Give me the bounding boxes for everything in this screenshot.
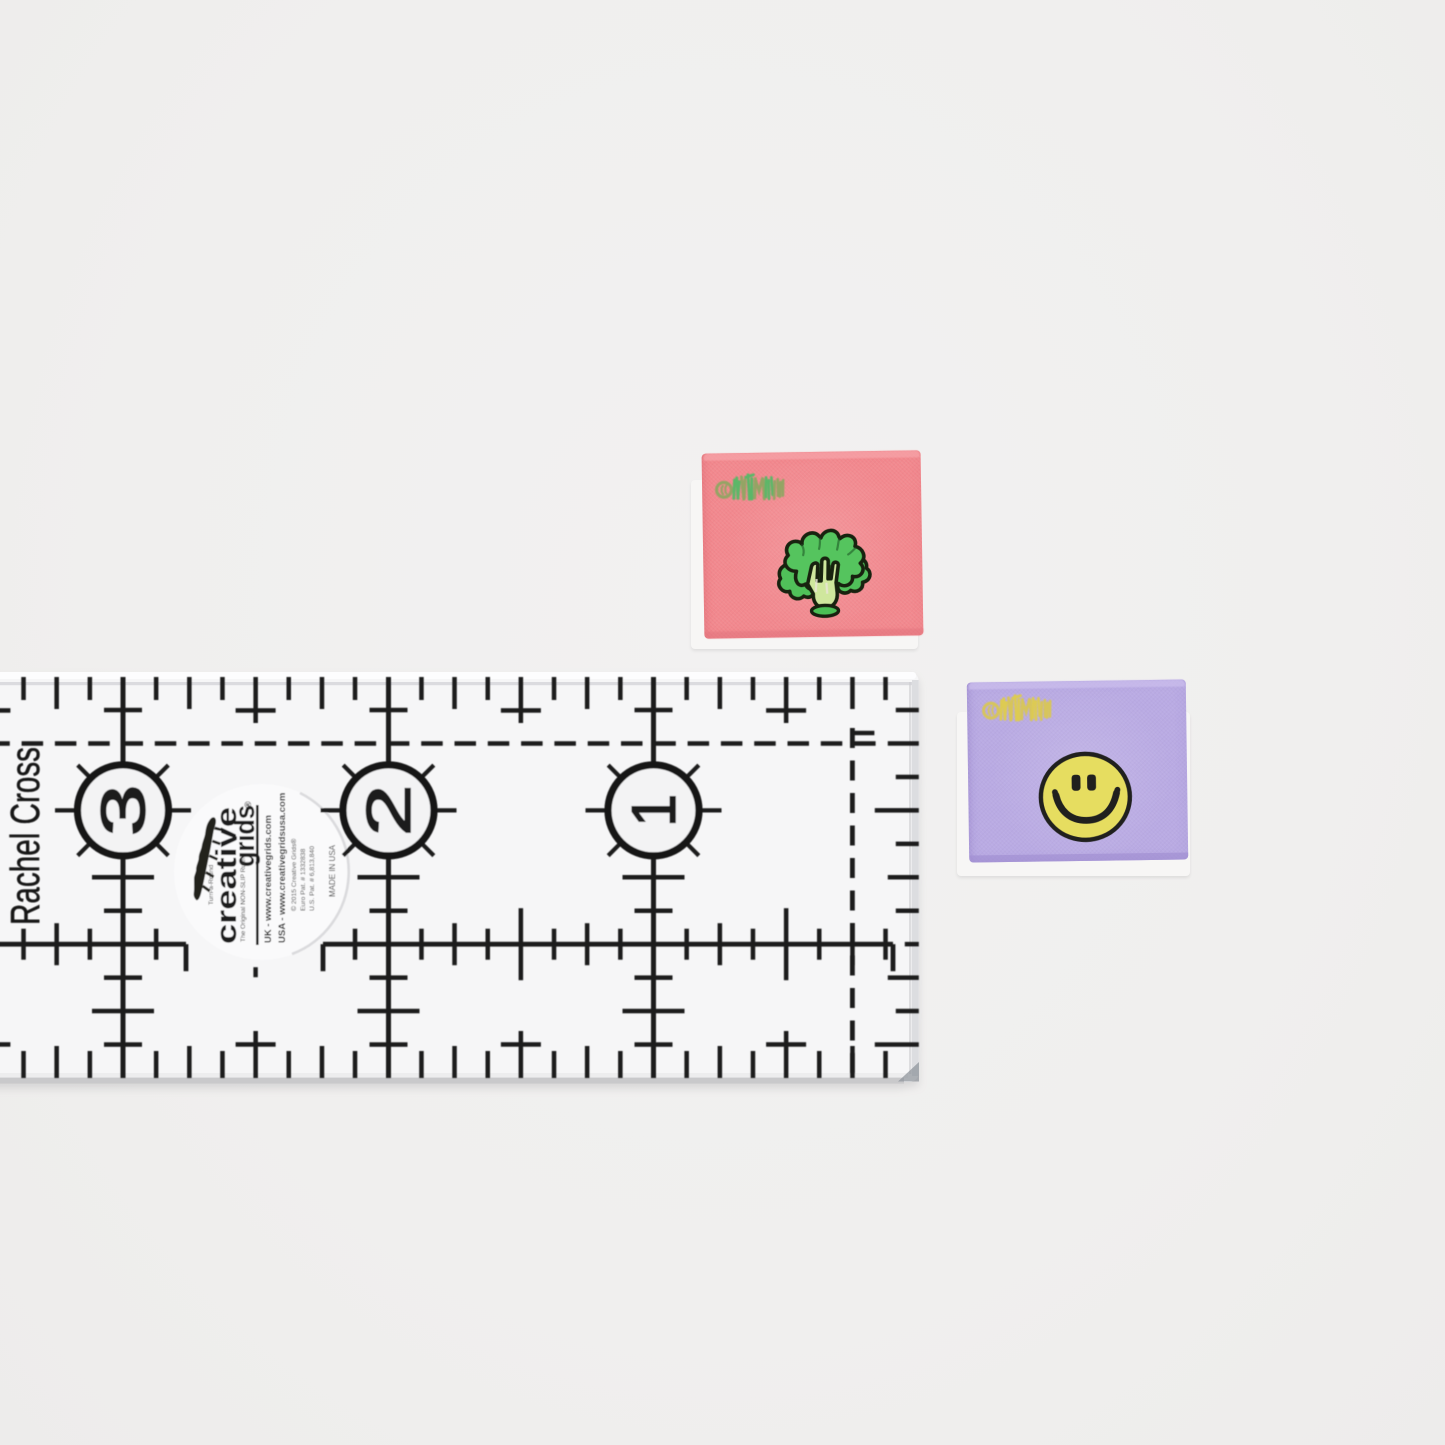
svg-text:Rachel Cross: Rachel Cross <box>2 747 48 925</box>
svg-text:The Original NON-SLIP Ruler: The Original NON-SLIP Ruler <box>240 856 247 942</box>
svg-text:1: 1 <box>620 794 689 827</box>
svg-text:2: 2 <box>355 784 424 836</box>
svg-text:Euro Pat. # 1332838: Euro Pat. # 1332838 <box>300 848 307 911</box>
svg-text:U.S. Pat. # 6,813,840: U.S. Pat. # 6,813,840 <box>309 846 316 911</box>
svg-text:USA - www.creativegridsusa.com: USA - www.creativegridsusa.com <box>277 793 288 943</box>
svg-text:®: ® <box>243 801 253 808</box>
svg-text:UK - www.creativegrids.com: UK - www.creativegrids.com <box>263 815 274 943</box>
svg-text:MADE IN USA: MADE IN USA <box>328 844 337 897</box>
svg-text:3: 3 <box>90 784 159 836</box>
svg-text:© 2015 Creative Grids®: © 2015 Creative Grids® <box>290 839 298 911</box>
